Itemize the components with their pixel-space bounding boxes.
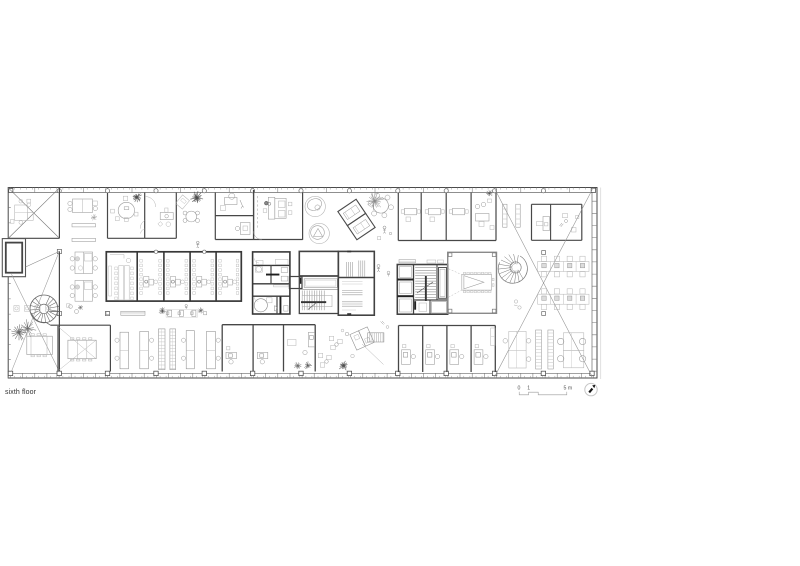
svg-text:sixth floor: sixth floor: [5, 389, 37, 396]
svg-text:0: 0: [518, 386, 521, 392]
svg-text:1: 1: [527, 386, 530, 392]
svg-text:5 m: 5 m: [564, 386, 573, 392]
